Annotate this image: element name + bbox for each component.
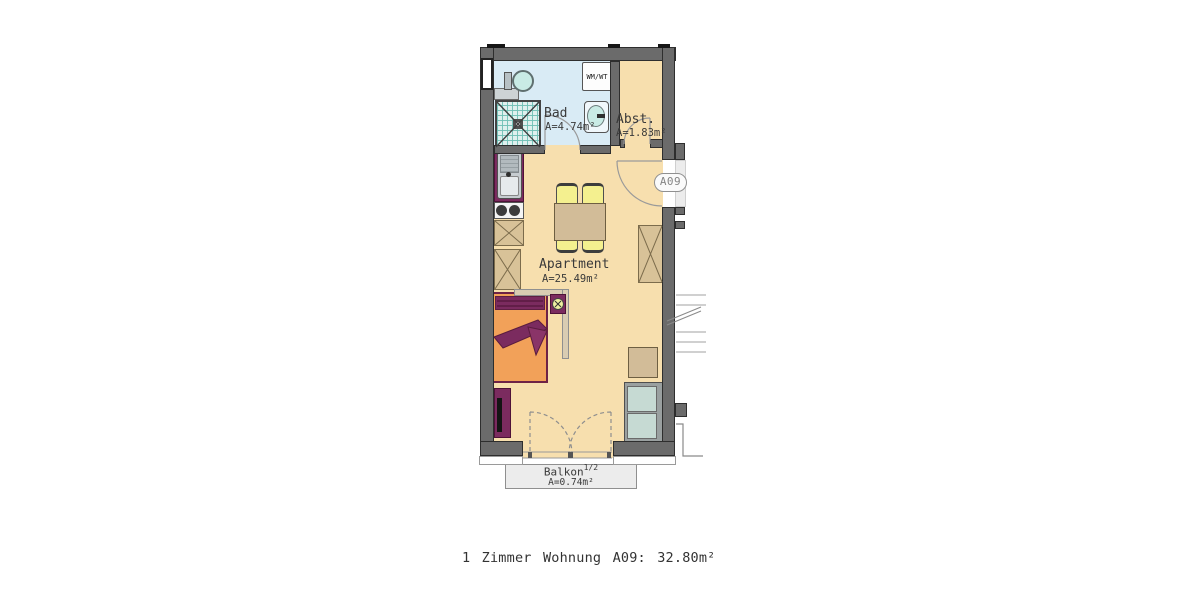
sink-basin-icon: [500, 176, 519, 196]
washbasin-tap-icon: [597, 114, 605, 118]
lamp-icon: [552, 298, 564, 310]
wall-bottom-right: [613, 441, 675, 456]
wall-corridor-nub: [675, 221, 685, 229]
room-label-bad: Bad: [544, 106, 567, 121]
stairs-icon: [676, 295, 706, 352]
balcony: Balkon1/2 A=0.74m²: [505, 464, 637, 489]
room-label-apartment: Apartment: [539, 257, 609, 272]
toilet-bowl-icon: [512, 70, 534, 92]
washing-machine-label: WM/WT: [586, 73, 607, 81]
kitchen-cabinet-icon: [494, 220, 524, 246]
shower-drain-icon: [513, 119, 523, 129]
wall-left: [480, 47, 494, 456]
wall-corridor-nub: [675, 207, 685, 215]
wardrobe-icon: [638, 225, 663, 283]
burner-icon: [496, 205, 507, 216]
sink-tap-icon: [506, 172, 511, 177]
floorplan-canvas: Balkon1/2 A=0.74m² WM/WT: [0, 0, 1200, 600]
wall-abst-bottom-stub: [620, 139, 625, 148]
burner-icon: [509, 205, 520, 216]
sink-drainer-icon: [500, 155, 519, 173]
toilet-tank-icon: [504, 72, 512, 90]
side-table-icon: [628, 347, 658, 378]
wall-abst-bottom-right: [650, 139, 663, 148]
pillow-icon: [495, 296, 545, 310]
tv-icon: [497, 398, 502, 432]
wall-bad-bottom-right: [580, 145, 611, 154]
wall-right-lower: [662, 207, 675, 456]
sill-right: [613, 456, 676, 465]
balcony-door-floor-strip: [522, 441, 613, 458]
balcony-share-superscript: 1/2: [584, 463, 598, 472]
area-label-abst: A=1.83m²: [616, 127, 667, 139]
wall-entry-jamb: [675, 143, 685, 160]
wall-bottom-left: [480, 441, 523, 456]
wall-joint-mark: [608, 44, 620, 48]
wall-top: [480, 47, 676, 61]
wall-bad-bottom-left: [494, 145, 545, 154]
sill-left: [479, 456, 523, 465]
balcony-area-label: A=0.74m²: [548, 478, 594, 488]
sofa-cushion: [627, 386, 657, 412]
washing-machine-icon: WM/WT: [582, 62, 612, 91]
room-label-abst: Abst.: [616, 112, 655, 127]
wall-right-upper: [662, 47, 675, 160]
unit-badge: A09: [654, 173, 687, 192]
wall-joint-mark: [487, 44, 505, 48]
kitchen-cabinet-icon: [494, 249, 521, 290]
wall-pier: [675, 403, 687, 417]
sofa-cushion: [627, 413, 657, 439]
exterior-outline: [676, 424, 703, 456]
caption: 1 Zimmer Wohnung A09: 32.80m²: [462, 550, 716, 566]
window-icon: [481, 58, 493, 90]
dining-table-icon: [554, 203, 606, 241]
area-label-apartment: A=25.49m²: [542, 273, 599, 285]
area-label-bad: A=4.74m²: [545, 121, 596, 133]
wall-joint-mark: [658, 44, 670, 48]
